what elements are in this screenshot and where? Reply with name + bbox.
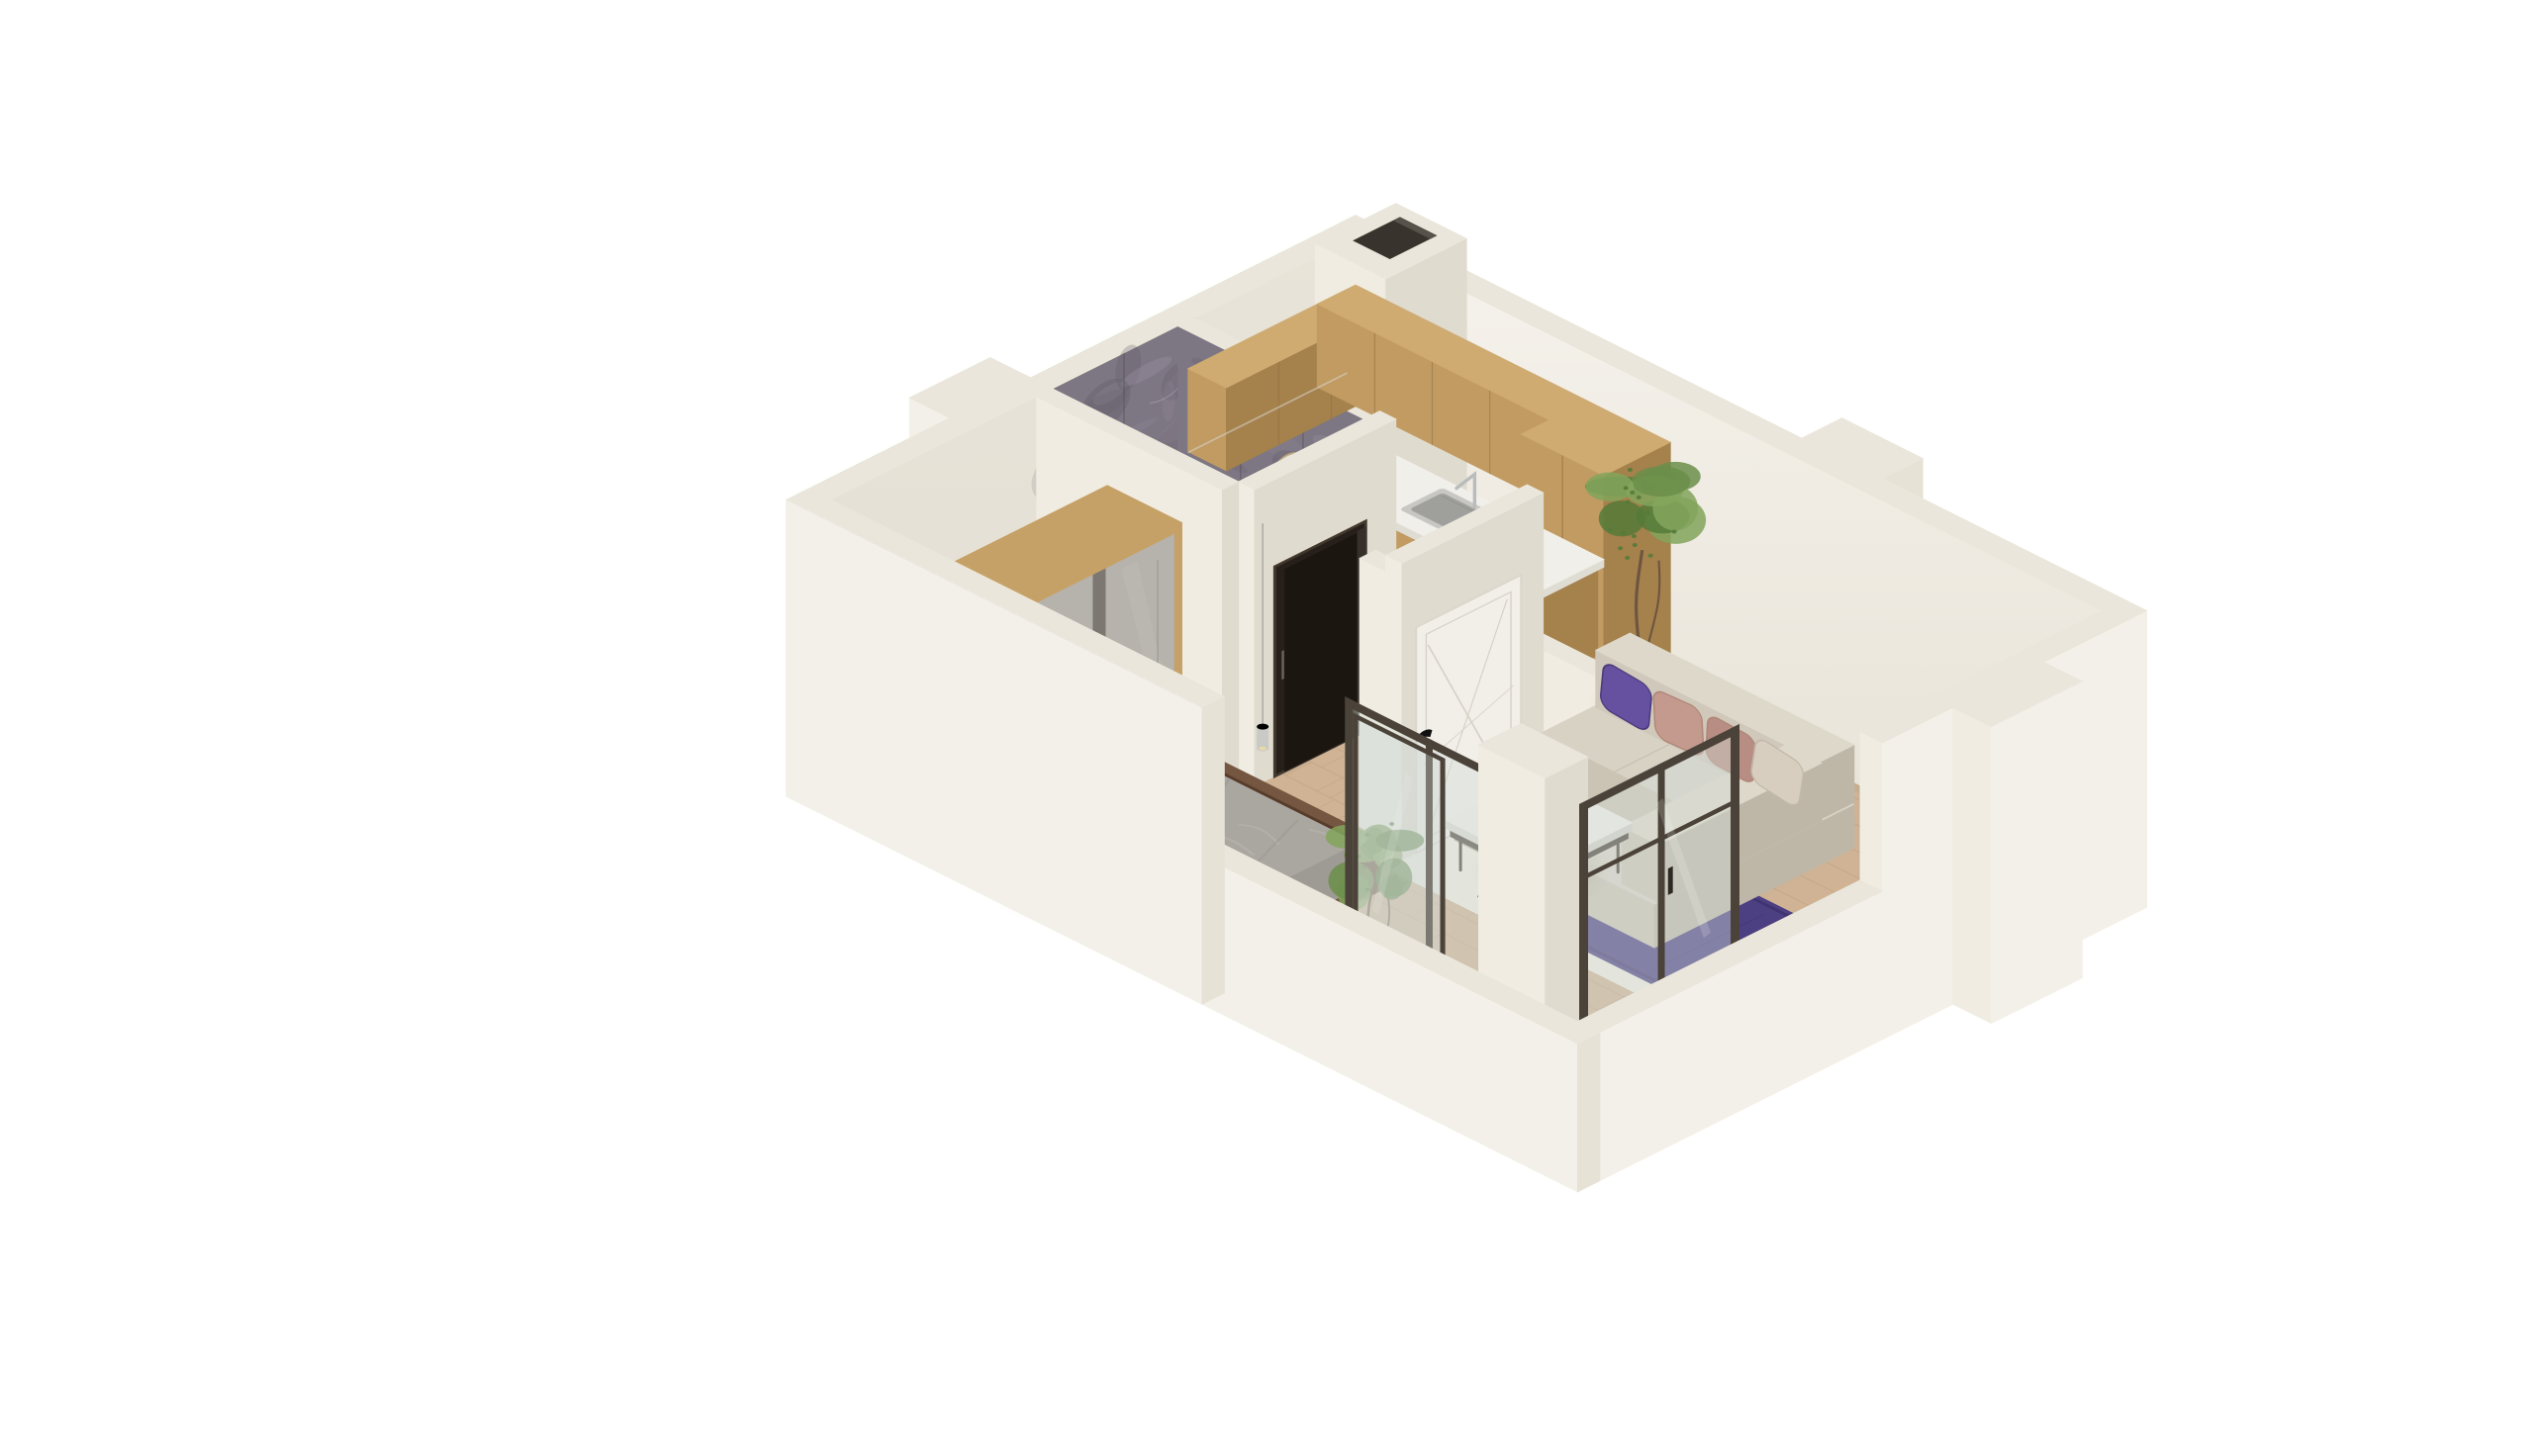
- floor-plan-3d-render: Isometric 3D cutaway floor plan of a one…: [40, 16, 2533, 1440]
- se-wall-pillar: [1953, 662, 2083, 1023]
- isometric-scene: [40, 16, 2533, 1440]
- apartment: [787, 203, 2147, 1192]
